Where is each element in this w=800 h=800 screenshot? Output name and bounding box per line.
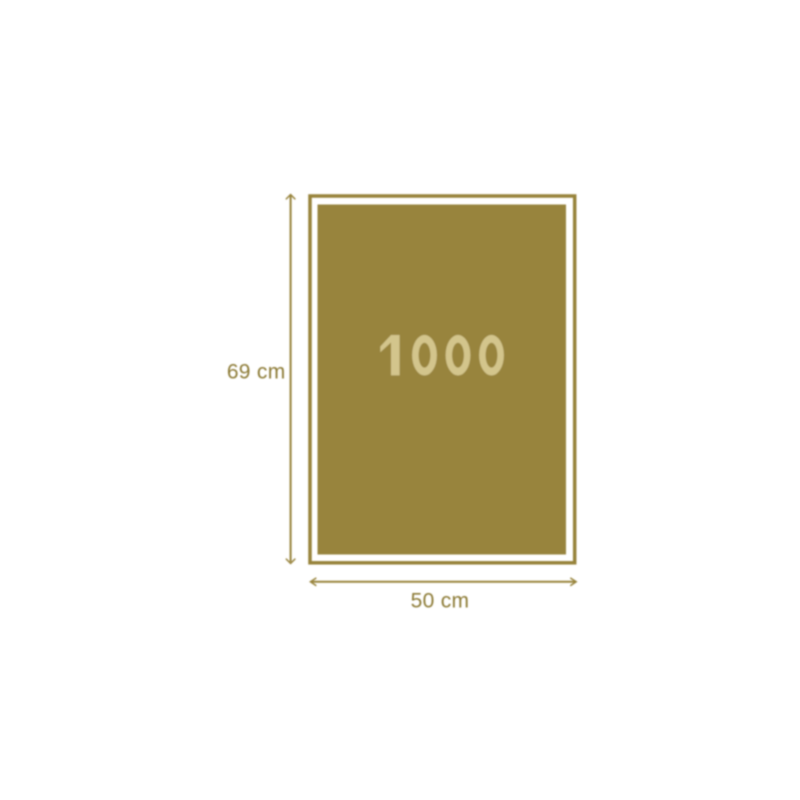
svg-text:50 cm: 50 cm bbox=[411, 589, 470, 612]
svg-text:69 cm: 69 cm bbox=[227, 360, 286, 383]
